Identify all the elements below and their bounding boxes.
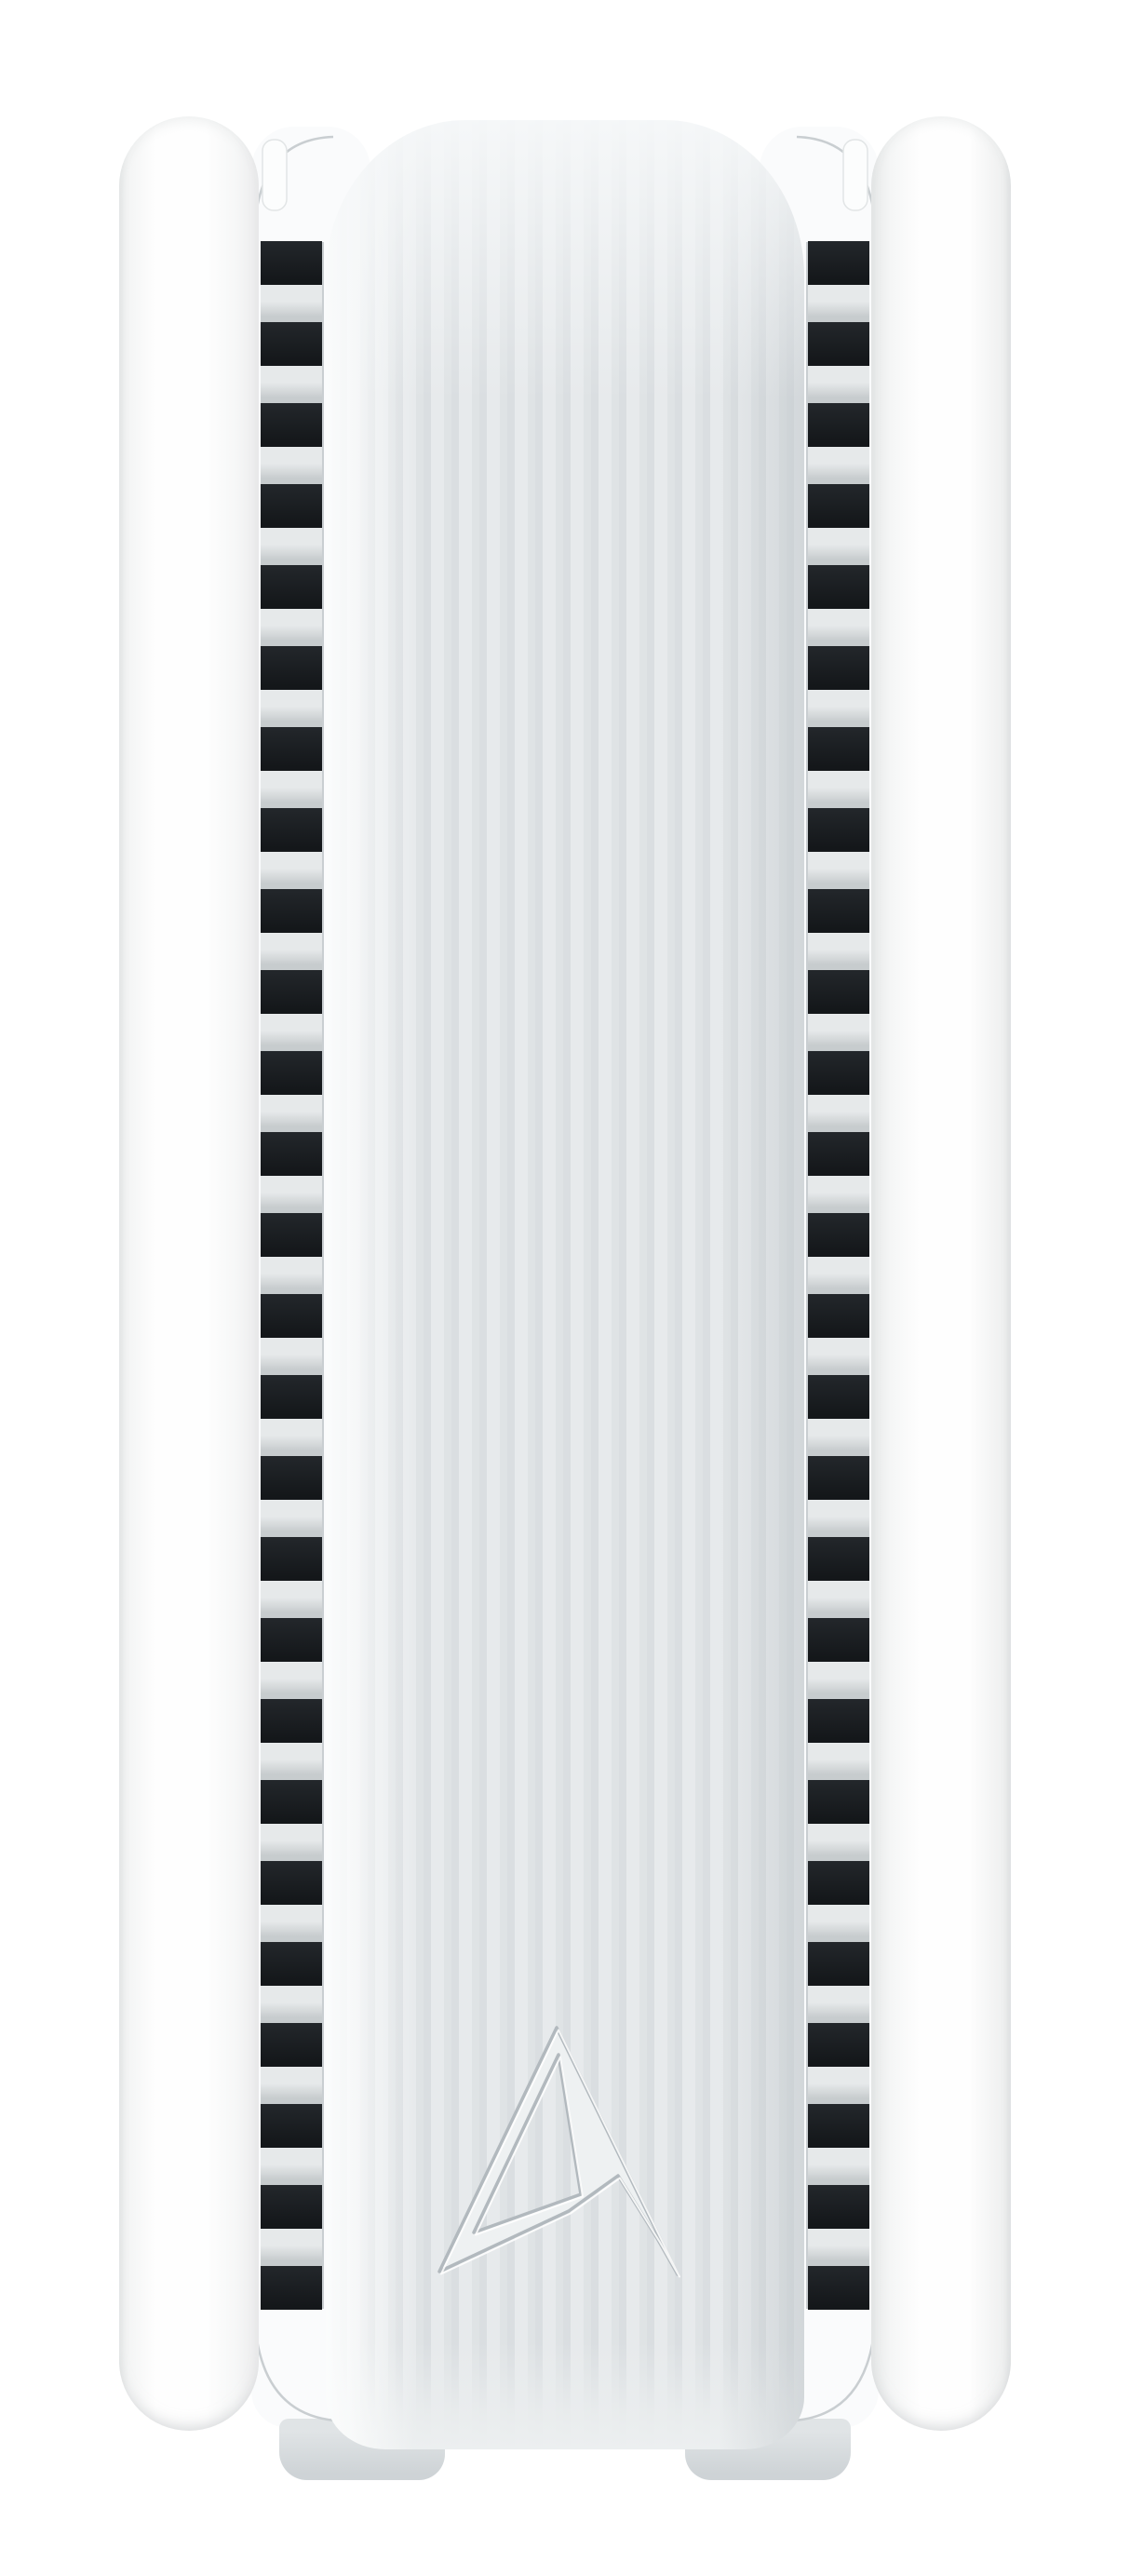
left-pillar <box>119 116 259 2431</box>
right-pillar <box>871 116 1011 2431</box>
frame-tab-right <box>843 140 868 210</box>
triangular-arrow-icon <box>439 2028 678 2274</box>
product-photo <box>0 0 1130 2576</box>
frame-tab-left <box>262 140 287 210</box>
brand-logo <box>410 2002 698 2290</box>
